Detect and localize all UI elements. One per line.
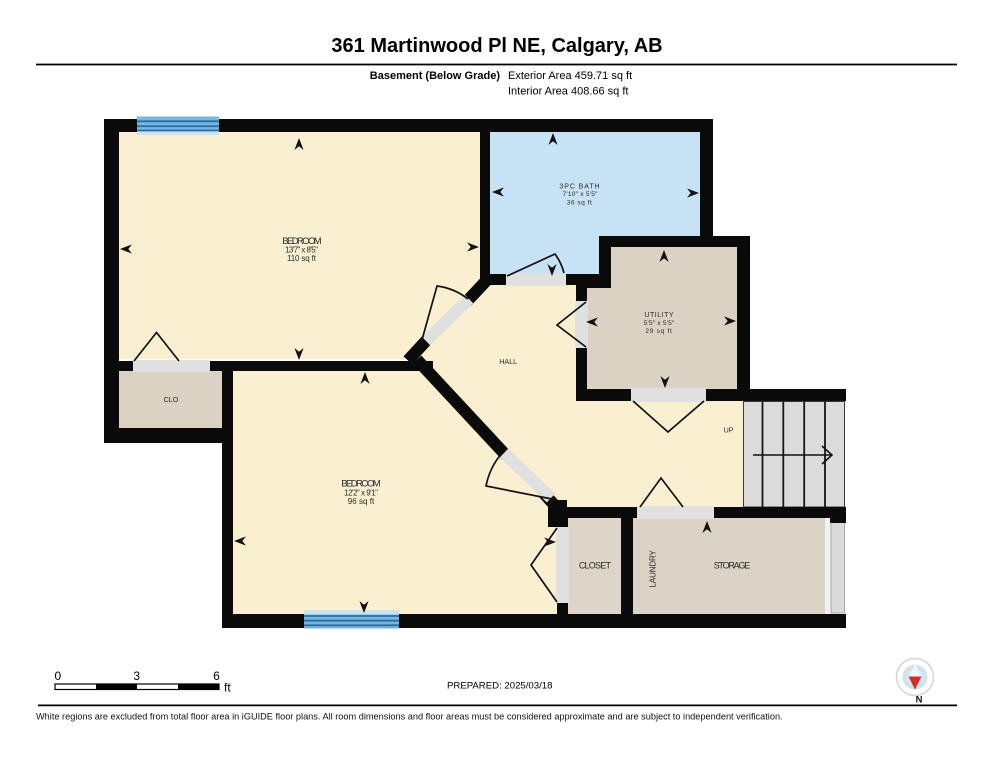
svg-text:PREPARED: 2025/03/18: PREPARED: 2025/03/18 bbox=[447, 681, 552, 692]
svg-text:N: N bbox=[916, 695, 923, 706]
svg-text:36 sq ft: 36 sq ft bbox=[567, 200, 592, 207]
svg-text:White regions are excluded fro: White regions are excluded from total fl… bbox=[36, 712, 783, 722]
svg-text:HALL: HALL bbox=[499, 357, 517, 366]
svg-text:LAUNDRY: LAUNDRY bbox=[648, 550, 657, 588]
svg-text:361 Martinwood Pl NE, Calgary,: 361 Martinwood Pl NE, Calgary, AB bbox=[331, 35, 662, 57]
svg-text:7'10" x 5'5": 7'10" x 5'5" bbox=[563, 191, 599, 198]
svg-text:110 sq ft: 110 sq ft bbox=[287, 254, 317, 263]
svg-text:Interior Area 408.66 sq ft: Interior Area 408.66 sq ft bbox=[508, 86, 628, 98]
svg-text:6: 6 bbox=[213, 669, 220, 683]
svg-text:STORAGE: STORAGE bbox=[714, 561, 751, 571]
svg-text:Basement (Below Grade): Basement (Below Grade) bbox=[370, 70, 501, 82]
svg-text:UP: UP bbox=[724, 426, 734, 435]
svg-text:3: 3 bbox=[133, 669, 140, 683]
svg-text:0: 0 bbox=[54, 669, 61, 683]
svg-text:CLO: CLO bbox=[164, 395, 179, 404]
svg-text:29 sq ft: 29 sq ft bbox=[645, 328, 672, 335]
svg-text:UTILITY: UTILITY bbox=[644, 312, 674, 319]
svg-text:CLOSET: CLOSET bbox=[579, 561, 612, 571]
svg-text:5'5" x 5'5": 5'5" x 5'5" bbox=[644, 320, 675, 327]
svg-text:Exterior Area 459.71 sq ft: Exterior Area 459.71 sq ft bbox=[508, 70, 632, 82]
svg-text:3PC BATH: 3PC BATH bbox=[559, 183, 599, 190]
svg-text:96 sq ft: 96 sq ft bbox=[348, 497, 375, 506]
svg-text:ft: ft bbox=[224, 681, 231, 695]
